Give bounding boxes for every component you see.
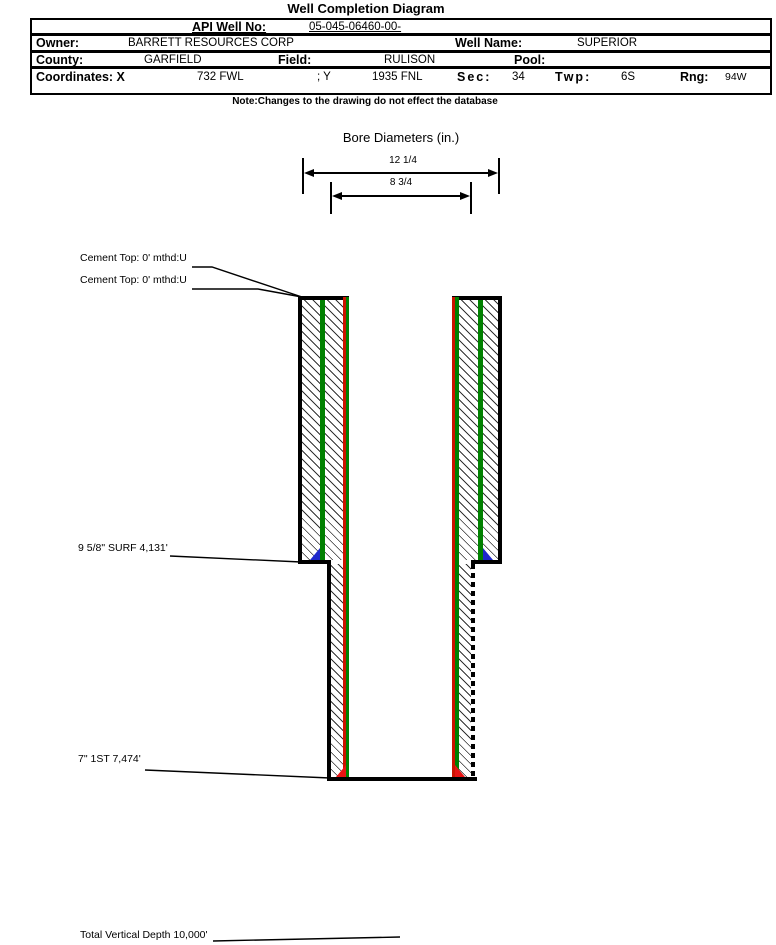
sec-label: Sec: bbox=[457, 70, 491, 84]
api-well-no-label: API Well No: bbox=[192, 20, 266, 34]
table-row-coordinates: Coordinates: X 732 FWL ; Y 1935 FNL Sec:… bbox=[32, 66, 770, 84]
coordinate-y-value: 1935 FNL bbox=[372, 71, 423, 83]
table-row-county: County: GARFIELD Field: RULISON Pool: bbox=[32, 50, 770, 66]
owner-label: Owner: bbox=[36, 36, 79, 50]
cement-hatch-lower-right bbox=[459, 564, 471, 777]
coordinate-x-value: 732 FWL bbox=[197, 71, 244, 83]
surface-casing-label: 9 5/8" SURF 4,131' bbox=[78, 542, 168, 554]
well-name-value: SUPERIOR bbox=[577, 37, 637, 49]
cement-hatch-lower-left bbox=[331, 564, 343, 777]
page-title: Well Completion Diagram bbox=[166, 1, 566, 16]
cement-top-label-2: Cement Top: 0' mthd:U bbox=[80, 274, 187, 286]
borehole-wall-upper-right bbox=[498, 297, 502, 563]
surface-shoe-step-right bbox=[471, 560, 502, 564]
well-completion-page: Well Completion Diagram API Well No: 05-… bbox=[0, 0, 776, 945]
rng-value: 94W bbox=[725, 71, 747, 83]
arrowhead-right-icon bbox=[460, 192, 470, 200]
leader-cement-top-2 bbox=[192, 289, 302, 297]
arrowhead-left-icon bbox=[332, 192, 342, 200]
leader-production-casing bbox=[145, 770, 330, 778]
note-text: Note:Changes to the drawing do not effec… bbox=[165, 96, 565, 107]
cement-hatch-upper-right-outer bbox=[483, 300, 498, 560]
pool-label: Pool: bbox=[514, 53, 545, 67]
production-casing-line-left bbox=[346, 297, 349, 777]
rng-label: Rng: bbox=[680, 70, 708, 84]
arrowhead-right-icon bbox=[488, 169, 498, 177]
cement-hatch-upper-left-outer bbox=[302, 300, 320, 560]
field-value: RULISON bbox=[384, 54, 435, 66]
cement-hatch-upper-left-inner bbox=[325, 300, 343, 560]
leader-cement-top-1 bbox=[192, 267, 302, 297]
twp-value: 6S bbox=[621, 71, 635, 83]
bore-diameters-title: Bore Diameters (in.) bbox=[301, 130, 501, 145]
production-casing-label: 7" 1ST 7,474' bbox=[78, 753, 141, 765]
leader-tvd bbox=[213, 937, 400, 941]
bore-diameter-12-label: 12 1/4 bbox=[373, 155, 433, 166]
coordinate-y-label: ; Y bbox=[317, 71, 331, 83]
leader-surface-casing bbox=[170, 556, 301, 562]
sec-value: 34 bbox=[512, 71, 525, 83]
field-label: Field: bbox=[278, 53, 311, 67]
county-label: County: bbox=[36, 53, 83, 67]
owner-value: BARRETT RESOURCES CORP bbox=[128, 37, 294, 49]
info-table: API Well No: 05-045-06460-00- Owner: BAR… bbox=[30, 18, 772, 95]
cement-top-label-1: Cement Top: 0' mthd:U bbox=[80, 252, 187, 264]
tvd-label: Total Vertical Depth 10,000' bbox=[80, 929, 208, 941]
api-well-no-value: 05-045-06460-00- bbox=[309, 21, 401, 33]
twp-label: Twp: bbox=[555, 70, 591, 84]
cement-hatch-upper-right-inner bbox=[459, 300, 478, 560]
county-value: GARFIELD bbox=[144, 54, 202, 66]
well-name-label: Well Name: bbox=[455, 36, 522, 50]
bore-diameter-8-label: 8 3/4 bbox=[371, 177, 431, 188]
borehole-wall-lower-right-dashed bbox=[471, 564, 475, 777]
coordinates-label: Coordinates: X bbox=[36, 70, 125, 84]
casing-bottom-bar bbox=[327, 777, 477, 781]
table-row-api: API Well No: 05-045-06460-00- bbox=[32, 20, 770, 33]
table-row-owner: Owner: BARRETT RESOURCES CORP Well Name:… bbox=[32, 33, 770, 50]
arrowhead-left-icon bbox=[304, 169, 314, 177]
